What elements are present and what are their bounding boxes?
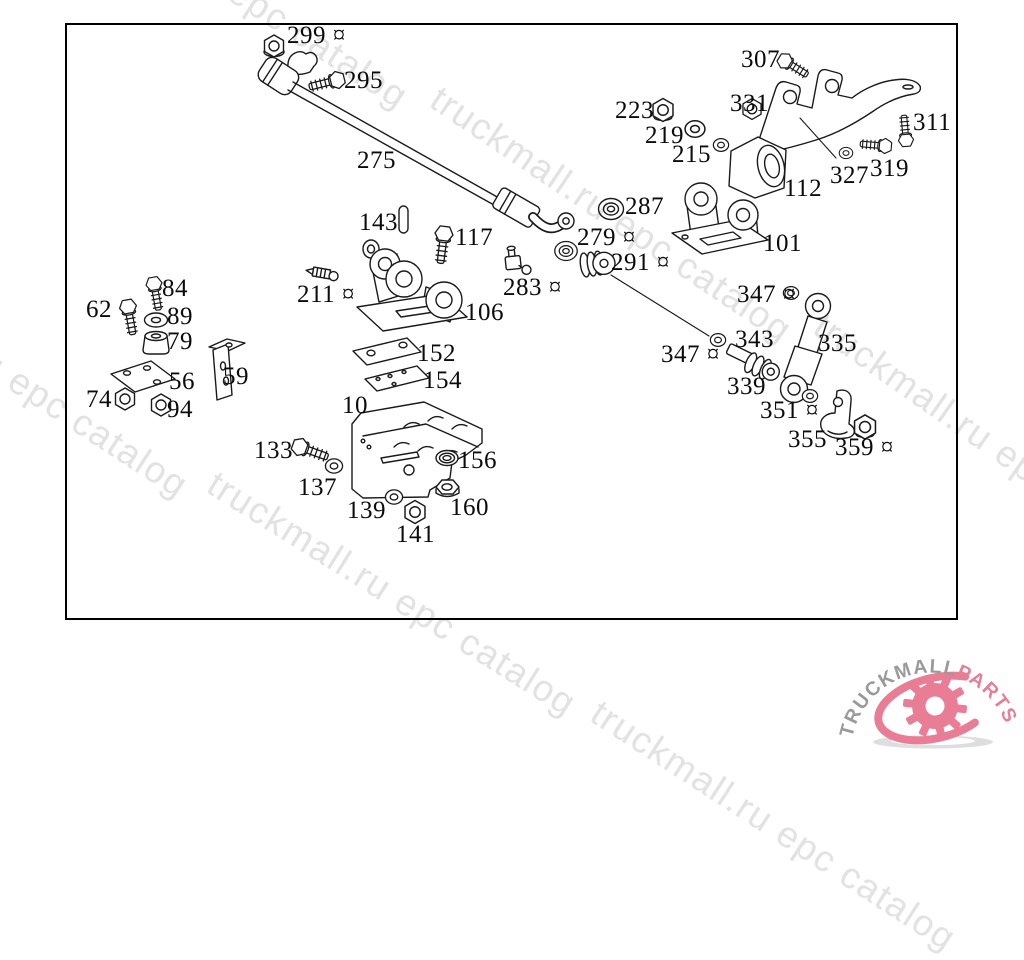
part-133-bolt (290, 436, 331, 466)
part-331-nut (743, 99, 761, 120)
part-327-washer (839, 147, 853, 158)
part-351-washer (802, 390, 817, 403)
part-10-bracket (352, 402, 482, 498)
part-219-washer (685, 121, 705, 138)
parts-diagram (0, 0, 1024, 750)
part-156-washer (436, 451, 458, 466)
part-311-bolt (896, 115, 914, 147)
part-279-grommet (555, 242, 578, 261)
part-154-plate (365, 366, 429, 391)
part-355-hook-bracket (821, 390, 855, 438)
part-335-shock-absorber (781, 294, 831, 403)
part-79-bushing (143, 332, 169, 355)
part-319-bolt (860, 136, 892, 154)
part-56-plate (111, 361, 175, 392)
part-275-rod (288, 82, 574, 229)
part-291-grommet (579, 249, 617, 278)
brand-logo: TRUCKMALLPARTS (838, 642, 1024, 750)
logo-suffix: PARTS (954, 661, 1022, 727)
leader-line-291 (611, 275, 709, 336)
part-117-bolt (431, 225, 453, 264)
part-143-pin (399, 206, 408, 233)
part-152-plate (353, 338, 421, 365)
part-74-nut (116, 388, 135, 410)
part-211-grease-nipple (305, 266, 339, 281)
part-307-bolt (775, 51, 812, 82)
part-59-bracket (209, 339, 245, 400)
part-223-nut (653, 98, 673, 121)
part-287-grommet (599, 199, 624, 220)
part-141-nut (405, 500, 425, 523)
part-160-nut (436, 480, 459, 497)
part-112-arm (729, 70, 920, 198)
part-347-washer-top (783, 287, 798, 300)
part-84-bolt (145, 276, 167, 311)
part-299-nut (264, 35, 284, 57)
part-137-washer (325, 459, 342, 473)
page: 299 ¤295275143117211 ¤106152154101331371… (0, 0, 1024, 750)
part-139-washer (385, 490, 402, 504)
part-283-valve (504, 244, 531, 276)
part-94-nut (152, 394, 171, 416)
part-106-bracket (357, 240, 467, 331)
part-295-bolt (307, 70, 346, 96)
part-62-bolt (118, 298, 141, 336)
part-359-nut (855, 415, 876, 439)
part-215-washer (713, 139, 728, 152)
part-347-washer-left (710, 334, 725, 347)
part-89-washer (145, 313, 168, 327)
